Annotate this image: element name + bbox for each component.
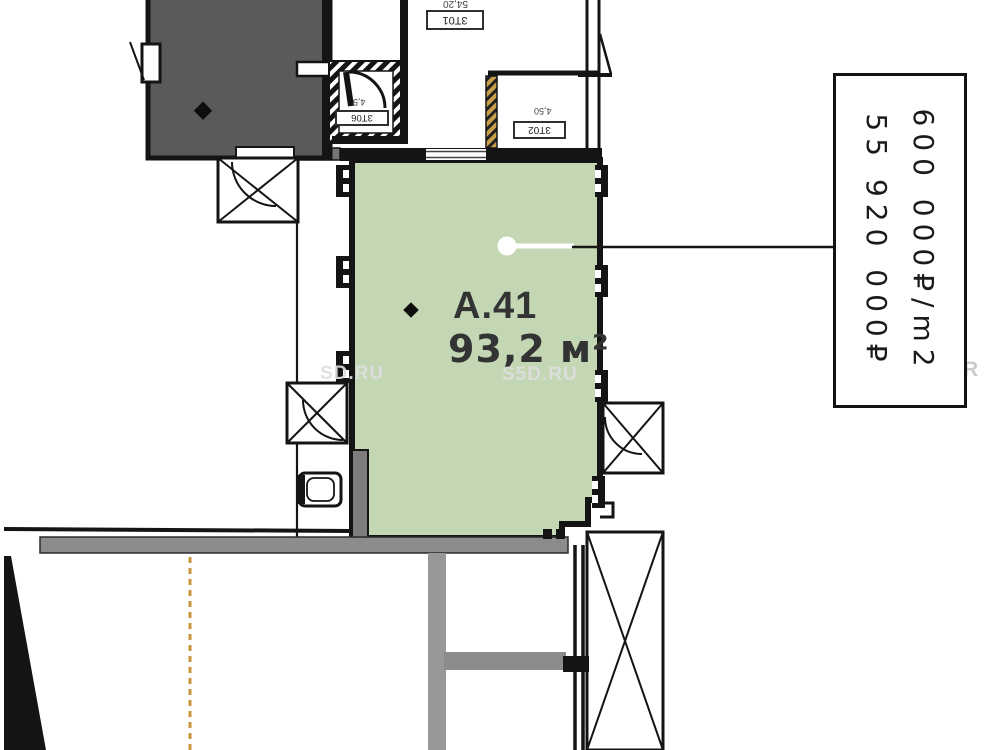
floor-plan-canvas: A.41 93,2 м² 54,20 3Т01 4,50 3Т02 4,5 3Т… (0, 0, 1000, 750)
window-symbol (236, 147, 294, 158)
unit-top-wall (286, 148, 602, 161)
unit-id-label: A.41 (453, 285, 537, 328)
price-marker-dot[interactable] (498, 237, 517, 256)
wall-opening (297, 62, 330, 76)
price-text: 600 000₽/m2 55 920 000₽ (853, 73, 947, 408)
room-3t01-area: 54,20 (443, 0, 468, 9)
room-3t02-area: 4,50 (534, 106, 552, 116)
room-3t06-shape (329, 61, 403, 143)
window-symbol (142, 44, 160, 82)
room-3t06-area: 4,5 (353, 97, 366, 107)
balcony-left (287, 383, 347, 443)
unit-area-label: 93,2 м² (448, 327, 610, 371)
insulated-wall (486, 76, 497, 148)
price-callout-box[interactable]: 600 000₽/m2 55 920 000₽ (833, 73, 967, 408)
price-total: 55 920 000₽ (853, 73, 900, 408)
toilet-fixture (296, 450, 368, 540)
balcony-right (603, 403, 663, 473)
balcony-top-left (218, 158, 298, 222)
price-per-m2: 600 000₽/m2 (900, 73, 947, 408)
balcony-bottom (587, 532, 663, 750)
wall-wedge (4, 556, 46, 750)
room-3t02-tag: 3Т02 (513, 121, 566, 139)
room-3t06-tag: 3Т06 (335, 110, 389, 126)
room-3t01-tag: 3Т01 (426, 10, 484, 30)
occupied-unit (130, 0, 332, 158)
bottom-walls (4, 503, 613, 750)
